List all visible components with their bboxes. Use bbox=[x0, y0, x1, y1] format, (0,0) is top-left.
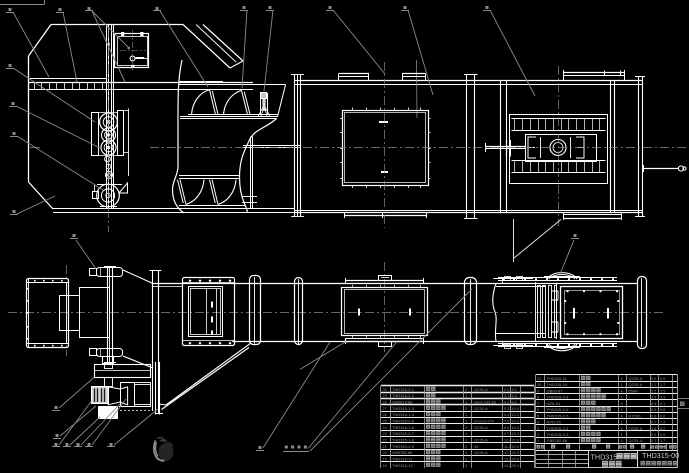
svg-text:GB93-87: GB93-87 bbox=[547, 388, 564, 393]
svg-text:Q235-A: Q235-A bbox=[474, 438, 488, 443]
svg-text:2.5: 2.5 bbox=[660, 389, 665, 393]
svg-text:0.0: 0.0 bbox=[651, 377, 656, 381]
svg-text:0.0: 0.0 bbox=[660, 377, 665, 381]
svg-text:30: 30 bbox=[383, 388, 387, 392]
svg-text:THD315: THD315 bbox=[591, 453, 618, 462]
svg-text:2.0: 2.0 bbox=[504, 388, 509, 392]
svg-text:HG4-333-66: HG4-333-66 bbox=[474, 400, 497, 405]
svg-text:20: 20 bbox=[537, 383, 541, 387]
svg-text:5: 5 bbox=[537, 414, 539, 418]
svg-text:Q235-A: Q235-A bbox=[629, 376, 643, 381]
svg-text:10.8: 10.8 bbox=[504, 439, 511, 443]
svg-text:6.6: 6.6 bbox=[660, 414, 665, 418]
svg-text:5.5: 5.5 bbox=[651, 408, 656, 412]
svg-text:26.6: 26.6 bbox=[512, 458, 519, 462]
svg-text:Q235-A: Q235-A bbox=[474, 425, 488, 430]
svg-text:24.3: 24.3 bbox=[512, 451, 519, 455]
svg-text:THD315-12: THD315-12 bbox=[392, 463, 413, 468]
svg-text:GB5013-86: GB5013-86 bbox=[392, 400, 413, 405]
svg-text:THD315-11: THD315-11 bbox=[392, 457, 413, 462]
svg-text:22.0: 22.0 bbox=[512, 445, 519, 449]
svg-text:GB5782-86: GB5782-86 bbox=[392, 450, 413, 455]
svg-text:Q235-A: Q235-A bbox=[629, 382, 643, 387]
svg-text:20: 20 bbox=[383, 451, 387, 455]
svg-text:65Mn: 65Mn bbox=[629, 388, 639, 393]
svg-text:UZK-01: UZK-01 bbox=[547, 401, 562, 406]
svg-text:4.2: 4.2 bbox=[504, 401, 509, 405]
svg-text:4: 4 bbox=[537, 421, 539, 425]
svg-text:0.7: 0.7 bbox=[651, 421, 656, 425]
svg-text:6.4: 6.4 bbox=[504, 413, 509, 417]
svg-text:HT200: HT200 bbox=[629, 413, 642, 418]
svg-text:7.5: 7.5 bbox=[504, 420, 509, 424]
svg-text:THD315-2-5: THD315-2-5 bbox=[392, 419, 415, 424]
svg-text:THD315-2-1: THD315-2-1 bbox=[392, 387, 415, 392]
svg-text:16.0: 16.0 bbox=[512, 426, 519, 430]
svg-text:29: 29 bbox=[383, 394, 387, 398]
svg-text:24: 24 bbox=[383, 426, 387, 430]
svg-text:Q235-A: Q235-A bbox=[474, 450, 488, 455]
svg-text:4.0: 4.0 bbox=[512, 388, 517, 392]
svg-text:5.3: 5.3 bbox=[504, 407, 509, 411]
svg-text:21: 21 bbox=[537, 377, 541, 381]
svg-text:4.4: 4.4 bbox=[651, 402, 656, 406]
svg-text:Q235-A: Q235-A bbox=[474, 387, 488, 392]
svg-text:9.7: 9.7 bbox=[504, 432, 509, 436]
svg-text:8.6: 8.6 bbox=[512, 401, 517, 405]
svg-text:Q235-A: Q235-A bbox=[474, 406, 488, 411]
svg-text:THD315-2-2: THD315-2-2 bbox=[392, 393, 415, 398]
svg-text:THD315-2-7: THD315-2-7 bbox=[392, 431, 415, 436]
svg-text:1.7: 1.7 bbox=[660, 383, 665, 387]
svg-text:28: 28 bbox=[383, 401, 387, 405]
svg-text:18.3: 18.3 bbox=[512, 432, 519, 436]
svg-text:3.3: 3.3 bbox=[651, 396, 656, 400]
svg-text:12.1: 12.1 bbox=[504, 451, 511, 455]
svg-text:7.4: 7.4 bbox=[660, 421, 665, 425]
svg-text:22: 22 bbox=[383, 439, 387, 443]
svg-text:THD315-2-6: THD315-2-6 bbox=[547, 407, 570, 412]
svg-text:14.3: 14.3 bbox=[504, 464, 511, 468]
svg-text:Q235-A: Q235-A bbox=[629, 426, 643, 431]
svg-text:25: 25 bbox=[383, 420, 387, 424]
svg-text:1: 1 bbox=[537, 439, 539, 443]
svg-text:1.8: 1.8 bbox=[651, 427, 656, 431]
svg-text:7: 7 bbox=[537, 402, 539, 406]
svg-text:THD315-10: THD315-10 bbox=[547, 382, 568, 387]
svg-text:4.1: 4.1 bbox=[660, 402, 665, 406]
svg-text:THD315-2-5: THD315-2-5 bbox=[547, 413, 570, 418]
svg-text:14.6: 14.6 bbox=[512, 420, 519, 424]
svg-text:5.8: 5.8 bbox=[660, 408, 665, 412]
svg-text:6.6: 6.6 bbox=[651, 414, 656, 418]
svg-text:8.2: 8.2 bbox=[660, 427, 665, 431]
svg-text:6.3: 6.3 bbox=[512, 394, 517, 398]
svg-text:28.0: 28.0 bbox=[512, 464, 519, 468]
svg-text:2.0: 2.0 bbox=[651, 433, 656, 437]
svg-text:THD315-1-6: THD315-1-6 bbox=[392, 425, 415, 430]
svg-text:8: 8 bbox=[537, 396, 539, 400]
svg-text:6: 6 bbox=[537, 408, 539, 412]
svg-text:THD315-11: THD315-11 bbox=[547, 376, 568, 381]
svg-text:GB5782-86: GB5782-86 bbox=[547, 438, 568, 443]
svg-text:10.0: 10.0 bbox=[512, 407, 519, 411]
svg-text:20.6: 20.6 bbox=[512, 439, 519, 443]
svg-text:2: 2 bbox=[537, 433, 539, 437]
svg-text:THD315-2-9: THD315-2-9 bbox=[392, 444, 415, 449]
svg-text:18: 18 bbox=[383, 464, 387, 468]
svg-text:THD315-1-8: THD315-1-8 bbox=[392, 438, 415, 443]
svg-text:THD315-2-8: THD315-2-8 bbox=[547, 395, 570, 400]
svg-text:12.3: 12.3 bbox=[512, 413, 519, 417]
svg-text:26: 26 bbox=[383, 413, 387, 417]
svg-text:THD315-2-3: THD315-2-3 bbox=[547, 432, 570, 437]
svg-text:8.6: 8.6 bbox=[504, 426, 509, 430]
svg-text:3.1: 3.1 bbox=[651, 439, 656, 443]
svg-text:NYD-25: NYD-25 bbox=[547, 420, 562, 425]
svg-text:45: 45 bbox=[474, 444, 479, 449]
svg-text:21: 21 bbox=[383, 445, 387, 449]
svg-text:THD315-00: THD315-00 bbox=[642, 451, 679, 460]
svg-text:3.3: 3.3 bbox=[660, 396, 665, 400]
svg-text:1.7: 1.7 bbox=[660, 439, 665, 443]
svg-text:9: 9 bbox=[537, 389, 539, 393]
svg-text:11.0: 11.0 bbox=[504, 445, 511, 449]
svg-text:3: 3 bbox=[537, 427, 539, 431]
svg-text:ZG310-570: ZG310-570 bbox=[474, 419, 495, 424]
svg-text:THD315-1-3: THD315-1-3 bbox=[392, 406, 415, 411]
svg-text:THD315-2-4: THD315-2-4 bbox=[547, 426, 570, 431]
svg-text:27: 27 bbox=[383, 407, 387, 411]
svg-text:2.2: 2.2 bbox=[651, 389, 656, 393]
svg-text:1.1: 1.1 bbox=[651, 383, 656, 387]
svg-text:Q235-A: Q235-A bbox=[629, 438, 643, 443]
svg-text:THD315-1-4: THD315-1-4 bbox=[392, 412, 415, 417]
svg-text:13.2: 13.2 bbox=[504, 458, 511, 462]
svg-text:3.1: 3.1 bbox=[504, 394, 509, 398]
svg-text:0.0: 0.0 bbox=[660, 433, 665, 437]
svg-text:19: 19 bbox=[383, 458, 387, 462]
svg-text:23: 23 bbox=[383, 432, 387, 436]
